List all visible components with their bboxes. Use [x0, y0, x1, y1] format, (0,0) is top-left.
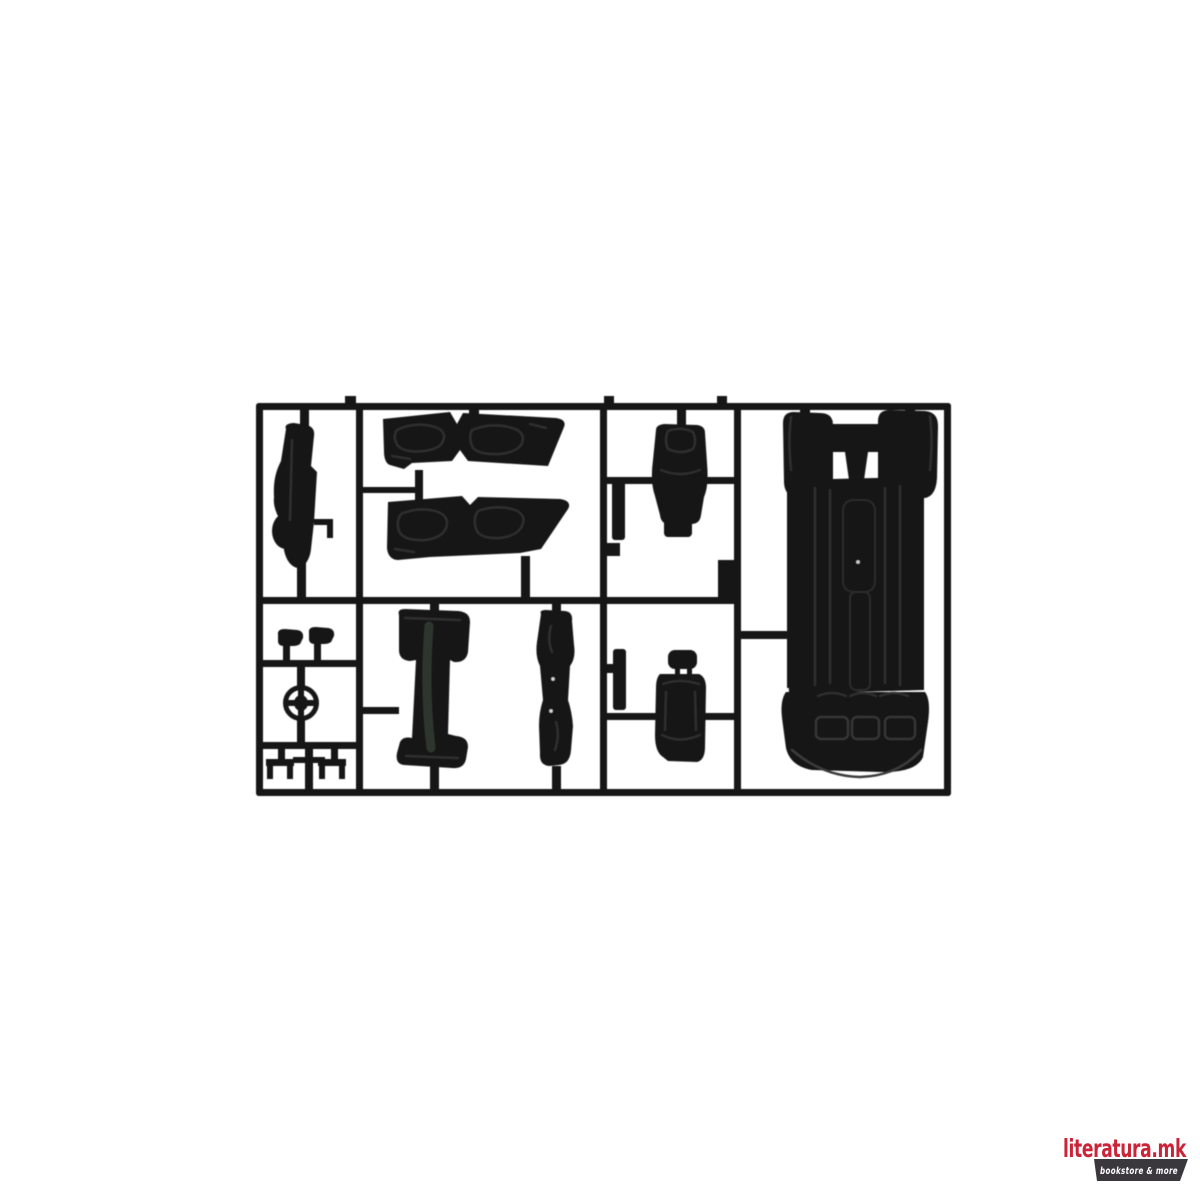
rail-part: [612, 481, 625, 540]
arm-clip-left: [293, 757, 307, 763]
bench-cushion-3: [885, 717, 915, 739]
nub-top-3: [717, 396, 727, 405]
runner-door-cell: [363, 487, 415, 493]
stem-headrest-1: [283, 645, 290, 662]
runner-left-divider-1: [256, 660, 363, 667]
door-panel-lower-part: [387, 496, 569, 560]
transmission-tunnel: [843, 500, 875, 592]
stem-wheel-bottom: [297, 717, 305, 744]
frame-right: [944, 403, 951, 796]
runner-left-divider-2: [256, 742, 363, 749]
nub-seat-cell: [607, 543, 620, 556]
stem-headrest-2: [314, 643, 321, 662]
console-right-part: [536, 610, 574, 766]
firewall: [828, 424, 884, 480]
nub-top-2: [604, 396, 614, 405]
watermark-tagline-text: bookstore & more: [1100, 1166, 1178, 1177]
watermark-logo: literatura.mk bookstore & more: [1063, 1134, 1188, 1181]
chassis-part: [782, 410, 939, 777]
nub-top-1: [345, 396, 356, 405]
seat-base-pad: [664, 516, 692, 537]
seat-part: [613, 649, 706, 762]
bench-cushion-2: [852, 717, 879, 739]
watermark-brand-text: literatura.mk: [1063, 1134, 1187, 1163]
runner-horizontal-main: [256, 597, 741, 604]
runner-tab: [718, 560, 736, 598]
rail-part-2: [613, 649, 626, 710]
gate-door-middle: [415, 470, 423, 500]
gate-console-left-bottom: [430, 766, 439, 790]
stem-clip-center: [305, 749, 313, 790]
gate-door-bottom: [521, 556, 530, 598]
gate-console-side: [363, 707, 399, 714]
console-left-part: [397, 609, 470, 768]
seat-headrest: [668, 650, 697, 669]
door-panel-upper-part: [383, 412, 565, 469]
product-photo: literatura.mk bookstore & more: [0, 0, 1200, 1200]
steering-wheel-part: [285, 687, 317, 719]
bench-cushion-1: [816, 717, 848, 739]
highlight-dot: [856, 560, 860, 564]
gate-console-right-bottom: [552, 766, 561, 790]
gate-chassis-side: [741, 631, 789, 639]
headrest-parts: [278, 627, 334, 646]
dashboard-part: [272, 423, 333, 568]
sprue-photo-svg: literatura.mk bookstore & more: [0, 0, 1200, 1200]
wheel-arch-right: [878, 410, 938, 498]
